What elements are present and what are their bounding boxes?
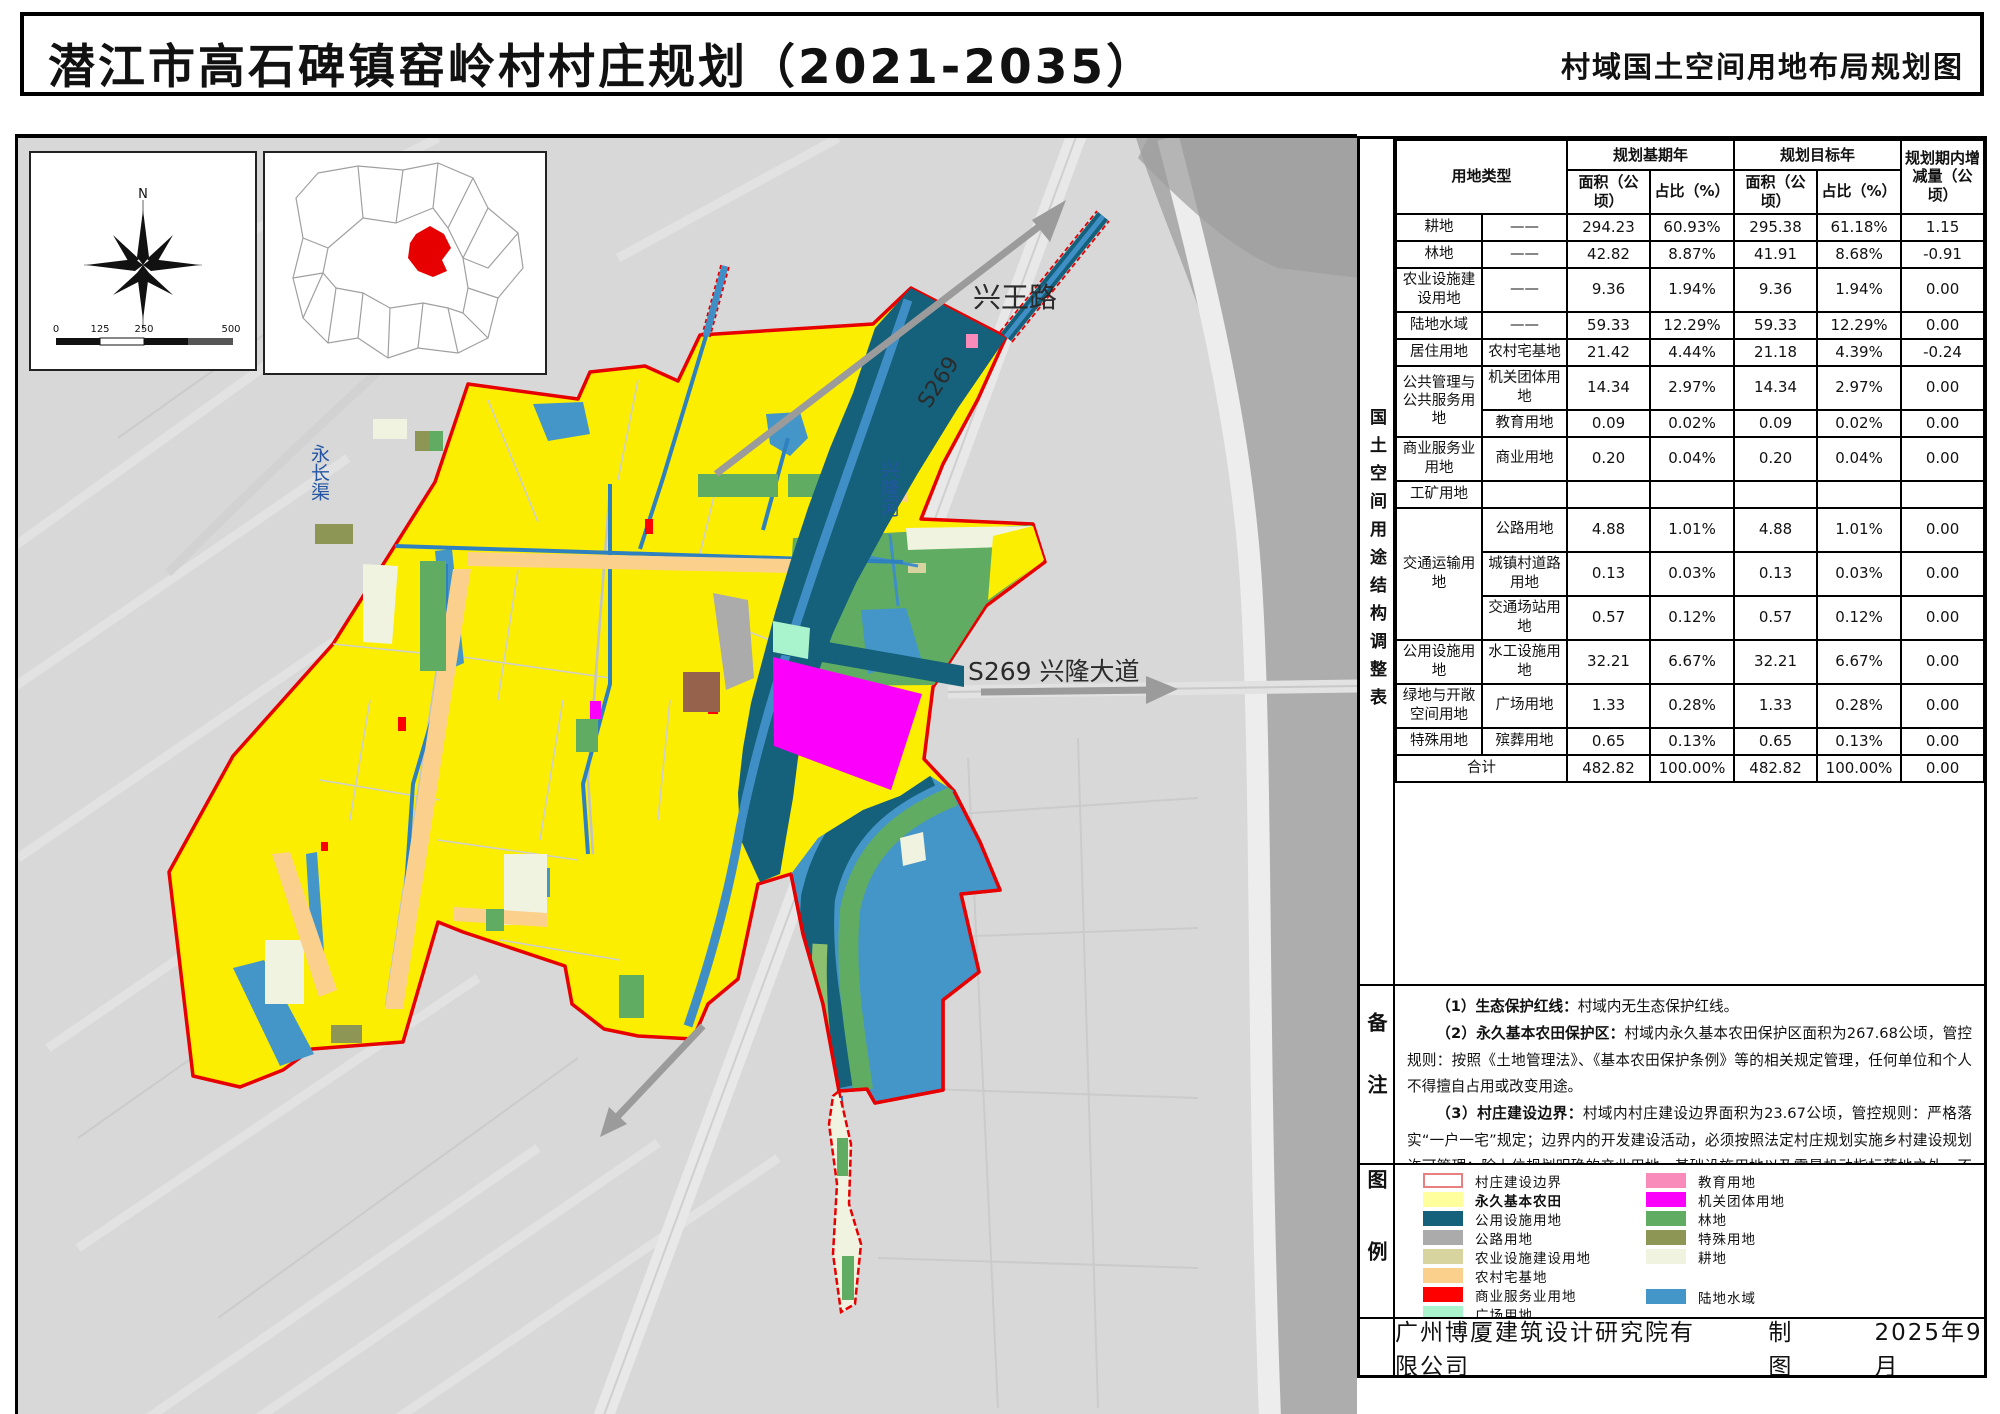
info-panel: 国土空间用途结构调整表 用地类型 规划基期年 规划目标年 规划期内增减量（公顷）: [1357, 136, 1987, 1378]
cell-value: 0.02%: [1650, 410, 1734, 437]
cell-value: 0.13%: [1817, 728, 1901, 755]
th-change: 规划期内增减量（公顷）: [1901, 140, 1984, 214]
cell-value: 9.36: [1567, 268, 1650, 312]
cell-value: 0.00: [1901, 728, 1984, 755]
legend-swatch: [1646, 1249, 1686, 1264]
cell-value: 0.02%: [1817, 410, 1901, 437]
cell-value: 59.33: [1567, 312, 1650, 339]
attribution: 广州博厦建筑设计研究院有限公司 制图 2025年9月: [1395, 1319, 1984, 1375]
cell-value: 0.00: [1901, 596, 1984, 640]
cell-value: 1.33: [1734, 684, 1817, 728]
cell-value: 32.21: [1734, 640, 1817, 684]
legend-section-title: 图例: [1360, 1165, 1395, 1318]
legend-item: 陆地水域: [1646, 1289, 1785, 1305]
legend-item: 林地: [1646, 1211, 1785, 1227]
legend-swatch: [1423, 1230, 1463, 1245]
cell-value: 0.04%: [1817, 437, 1901, 481]
cell-value: 32.21: [1567, 640, 1650, 684]
legend-item: 耕地: [1646, 1249, 1785, 1265]
svg-text:250: 250: [134, 324, 153, 335]
cell-value: 0.00: [1901, 312, 1984, 339]
cell-value: [1901, 481, 1984, 508]
legend-swatch: [1423, 1306, 1463, 1317]
footer-side-cell: [1360, 1319, 1395, 1375]
cell-category: 公用设施用地: [1396, 640, 1482, 684]
cell-value: 0.20: [1567, 437, 1650, 481]
inset-location-map: [264, 152, 546, 374]
cell-value: -0.24: [1901, 339, 1984, 366]
cell-value: 0.00: [1901, 410, 1984, 437]
legend-item: 村庄建设边界: [1423, 1173, 1591, 1189]
cell-value: 6.67%: [1817, 640, 1901, 684]
cell-value: 0.09: [1734, 410, 1817, 437]
cell-value: 0.00: [1901, 684, 1984, 728]
cell-value: 4.88: [1567, 508, 1650, 552]
cell-value: 0.04%: [1650, 437, 1734, 481]
legend-swatch: [1423, 1287, 1463, 1302]
cell-total-value: 100.00%: [1650, 755, 1734, 782]
design-company: 广州博厦建筑设计研究院有限公司: [1395, 1319, 1703, 1375]
cell-total-label: 合计: [1396, 755, 1567, 782]
cell-category: 林地: [1396, 241, 1482, 268]
cell-value: 4.44%: [1650, 339, 1734, 366]
cell-value: 0.03%: [1817, 552, 1901, 596]
cell-value: 1.15: [1901, 214, 1984, 241]
cell-value: 0.20: [1734, 437, 1817, 481]
cell-category: 工矿用地: [1396, 481, 1482, 508]
cell-value: 2.97%: [1650, 366, 1734, 410]
map-canvas: N: [18, 138, 1357, 1414]
road-label-xingwang: 兴王路: [973, 276, 1057, 316]
land-use-table: 用地类型 规划基期年 规划目标年 规划期内增减量（公顷） 面积（公顷） 占比（%…: [1395, 139, 1984, 783]
cell-value: 14.34: [1734, 366, 1817, 410]
cell-value: 0.00: [1901, 437, 1984, 481]
notes-text: （1）生态保护红线：村域内无生态保护红线。（2）永久基本农田保护区：村域内永久基…: [1395, 986, 1984, 1162]
cell-value: 0.12%: [1650, 596, 1734, 640]
cell-category: 居住用地: [1396, 339, 1482, 366]
cell-subcategory: 商业用地: [1482, 437, 1567, 481]
cell-value: 8.87%: [1650, 241, 1734, 268]
cell-subcategory: [1482, 481, 1567, 508]
legend-label: 陆地水域: [1698, 1287, 1756, 1307]
legend-label: 永久基本农田: [1475, 1190, 1562, 1210]
cell-subcategory: 教育用地: [1482, 410, 1567, 437]
title-bar: 潜江市高石碑镇窑岭村村庄规划（2021-2035） 村域国土空间用地布局规划图: [20, 12, 1984, 96]
legend-label: 广场用地: [1475, 1304, 1533, 1318]
inset-compass-scale: N: [30, 152, 256, 370]
cell-value: 21.18: [1734, 339, 1817, 366]
cell-value: 61.18%: [1817, 214, 1901, 241]
legend-item: 农业设施建设用地: [1423, 1249, 1591, 1265]
legend-swatch: [1646, 1230, 1686, 1245]
legend-swatch: [1646, 1192, 1686, 1207]
th-area-1: 面积（公顷）: [1567, 170, 1650, 214]
cell-value: 0.65: [1567, 728, 1650, 755]
legend-swatch: [1646, 1289, 1686, 1304]
cell-value: 0.13: [1734, 552, 1817, 596]
svg-text:500: 500: [221, 324, 240, 335]
cell-value: 60.93%: [1650, 214, 1734, 241]
cell-total-value: 100.00%: [1817, 755, 1901, 782]
cell-subcategory: ——: [1482, 214, 1567, 241]
note-item: （1）生态保护红线：村域内无生态保护红线。: [1407, 994, 1972, 1021]
cell-value: 0.00: [1901, 268, 1984, 312]
legend-label: 机关团体用地: [1698, 1190, 1785, 1210]
cell-total-value: 482.82: [1734, 755, 1817, 782]
compass-n-label: N: [138, 187, 148, 202]
cell-value: 14.34: [1567, 366, 1650, 410]
legend-swatch: [1646, 1173, 1686, 1188]
cell-value: 0.57: [1567, 596, 1650, 640]
cell-total-value: 0.00: [1901, 755, 1984, 782]
drafted-by-label: 制图: [1768, 1319, 1809, 1375]
svg-text:125: 125: [90, 324, 109, 335]
cell-value: 0.12%: [1817, 596, 1901, 640]
page-title: 潜江市高石碑镇窑岭村村庄规划（2021-2035）: [48, 28, 1156, 97]
section-land-use-table: 国土空间用途结构调整表 用地类型 规划基期年 规划目标年 规划期内增减量（公顷）: [1360, 139, 1984, 984]
cell-subcategory: 广场用地: [1482, 684, 1567, 728]
cell-subcategory: 公路用地: [1482, 508, 1567, 552]
legend-swatch: [1423, 1249, 1463, 1264]
cell-value: -0.91: [1901, 241, 1984, 268]
legend-swatch: [1423, 1192, 1463, 1207]
th-ratio-2: 占比（%）: [1817, 170, 1901, 214]
cell-value: 0.00: [1901, 552, 1984, 596]
cell-subcategory: 城镇村道路用地: [1482, 552, 1567, 596]
cell-value: 1.01%: [1650, 508, 1734, 552]
cell-value: [1567, 481, 1650, 508]
legend-label: 村庄建设边界: [1475, 1171, 1562, 1191]
cell-value: 0.65: [1734, 728, 1817, 755]
legend-item: 农村宅基地: [1423, 1268, 1591, 1284]
cell-category: 绿地与开敞空间用地: [1396, 684, 1482, 728]
legend-swatch: [1423, 1173, 1463, 1188]
cell-subcategory: 农村宅基地: [1482, 339, 1567, 366]
legend-item: 特殊用地: [1646, 1230, 1785, 1246]
cell-value: 2.97%: [1817, 366, 1901, 410]
cell-value: 294.23: [1567, 214, 1650, 241]
legend-swatch: [1646, 1211, 1686, 1226]
legend-item: 机关团体用地: [1646, 1192, 1785, 1208]
legend-label: 林地: [1698, 1209, 1727, 1229]
cell-value: 0.57: [1734, 596, 1817, 640]
cell-value: 0.00: [1901, 508, 1984, 552]
cell-category: 公共管理与公共服务用地: [1396, 366, 1482, 437]
legend-swatch: [1423, 1268, 1463, 1283]
svg-text:0: 0: [53, 324, 59, 335]
cell-value: 0.13%: [1650, 728, 1734, 755]
cell-value: [1817, 481, 1901, 508]
cell-value: 0.00: [1901, 640, 1984, 684]
cell-category: 交通运输用地: [1396, 508, 1482, 640]
cell-value: 41.91: [1734, 241, 1817, 268]
cell-subcategory: 水工设施用地: [1482, 640, 1567, 684]
legend-item: 商业服务业用地: [1423, 1287, 1591, 1303]
cell-subcategory: ——: [1482, 241, 1567, 268]
draft-date: 2025年9月: [1874, 1319, 1984, 1375]
th-base-year: 规划基期年: [1567, 140, 1734, 170]
legend-item: 教育用地: [1646, 1173, 1785, 1189]
canal-label-yongchang: 永长渠: [306, 444, 333, 501]
note-item: （2）永久基本农田保护区：村域内永久基本农田保护区面积为267.68公顷，管控规…: [1407, 1021, 1972, 1101]
legend-label: 农村宅基地: [1475, 1266, 1548, 1286]
cell-value: 59.33: [1734, 312, 1817, 339]
cell-value: 0.28%: [1817, 684, 1901, 728]
cell-value: 1.94%: [1817, 268, 1901, 312]
cell-value: 0.28%: [1650, 684, 1734, 728]
cell-value: 0.00: [1901, 366, 1984, 410]
legend-label: 公路用地: [1475, 1228, 1533, 1248]
table-section-title: 国土空间用途结构调整表: [1360, 139, 1395, 984]
cell-category: 商业服务业用地: [1396, 437, 1482, 481]
cell-value: [1650, 481, 1734, 508]
legend-label: 耕地: [1698, 1247, 1727, 1267]
cell-value: 295.38: [1734, 214, 1817, 241]
cell-subcategory: 交通场站用地: [1482, 596, 1567, 640]
cell-value: 4.39%: [1817, 339, 1901, 366]
th-target-year: 规划目标年: [1734, 140, 1901, 170]
legend-item: 永久基本农田: [1423, 1192, 1591, 1208]
planning-map: N: [15, 134, 1357, 1414]
cell-subcategory: ——: [1482, 268, 1567, 312]
cell-category: 农业设施建设用地: [1396, 268, 1482, 312]
cell-subcategory: ——: [1482, 312, 1567, 339]
cell-value: [1734, 481, 1817, 508]
cell-value: 1.01%: [1817, 508, 1901, 552]
th-area-2: 面积（公顷）: [1734, 170, 1817, 214]
cell-value: 1.33: [1567, 684, 1650, 728]
cell-value: 21.42: [1567, 339, 1650, 366]
cell-value: 9.36: [1734, 268, 1817, 312]
legend-item: 广场用地: [1423, 1306, 1591, 1318]
note-item: （3）村庄建设边界：村域内村庄建设边界面积为23.67公顷，管控规则：严格落实“…: [1407, 1101, 1972, 1163]
sheet-subtitle: 村域国土空间用地布局规划图: [1561, 44, 1964, 86]
section-notes: 备注 （1）生态保护红线：村域内无生态保护红线。（2）永久基本农田保护区：村域内…: [1360, 984, 1984, 1162]
cell-subcategory: 殡葬用地: [1482, 728, 1567, 755]
legend-item: 公用设施用地: [1423, 1211, 1591, 1227]
cell-value: 0.13: [1567, 552, 1650, 596]
cell-value: 6.67%: [1650, 640, 1734, 684]
cell-category: 特殊用地: [1396, 728, 1482, 755]
legend-label: 教育用地: [1698, 1171, 1756, 1191]
section-footer: 广州博厦建筑设计研究院有限公司 制图 2025年9月: [1360, 1317, 1984, 1375]
legend-label: 公用设施用地: [1475, 1209, 1562, 1229]
cell-value: 0.03%: [1650, 552, 1734, 596]
legend-label: 特殊用地: [1698, 1228, 1756, 1248]
cell-category: 陆地水域: [1396, 312, 1482, 339]
cell-value: 12.29%: [1817, 312, 1901, 339]
th-land-type: 用地类型: [1396, 140, 1567, 214]
cell-total-value: 482.82: [1567, 755, 1650, 782]
cell-subcategory: 机关团体用地: [1482, 366, 1567, 410]
river-label-xinglong: 兴隆河: [876, 460, 903, 517]
notes-section-title: 备注: [1360, 986, 1395, 1162]
legend-item: 公路用地: [1423, 1230, 1591, 1246]
legend: 村庄建设边界永久基本农田公用设施用地公路用地农业设施建设用地农村宅基地商业服务业…: [1395, 1165, 1984, 1318]
legend-label: 商业服务业用地: [1475, 1285, 1577, 1305]
cell-value: 0.09: [1567, 410, 1650, 437]
legend-label: 农业设施建设用地: [1475, 1247, 1591, 1267]
road-label-xinglong-avenue: S269 兴隆大道: [968, 652, 1140, 688]
section-legend: 图例 村庄建设边界永久基本农田公用设施用地公路用地农业设施建设用地农村宅基地商业…: [1360, 1163, 1984, 1318]
cell-value: 42.82: [1567, 241, 1650, 268]
cell-value: 1.94%: [1650, 268, 1734, 312]
legend-swatch: [1423, 1211, 1463, 1226]
cell-value: 4.88: [1734, 508, 1817, 552]
cell-value: 8.68%: [1817, 241, 1901, 268]
cell-value: 12.29%: [1650, 312, 1734, 339]
cell-category: 耕地: [1396, 214, 1482, 241]
th-ratio-1: 占比（%）: [1650, 170, 1734, 214]
